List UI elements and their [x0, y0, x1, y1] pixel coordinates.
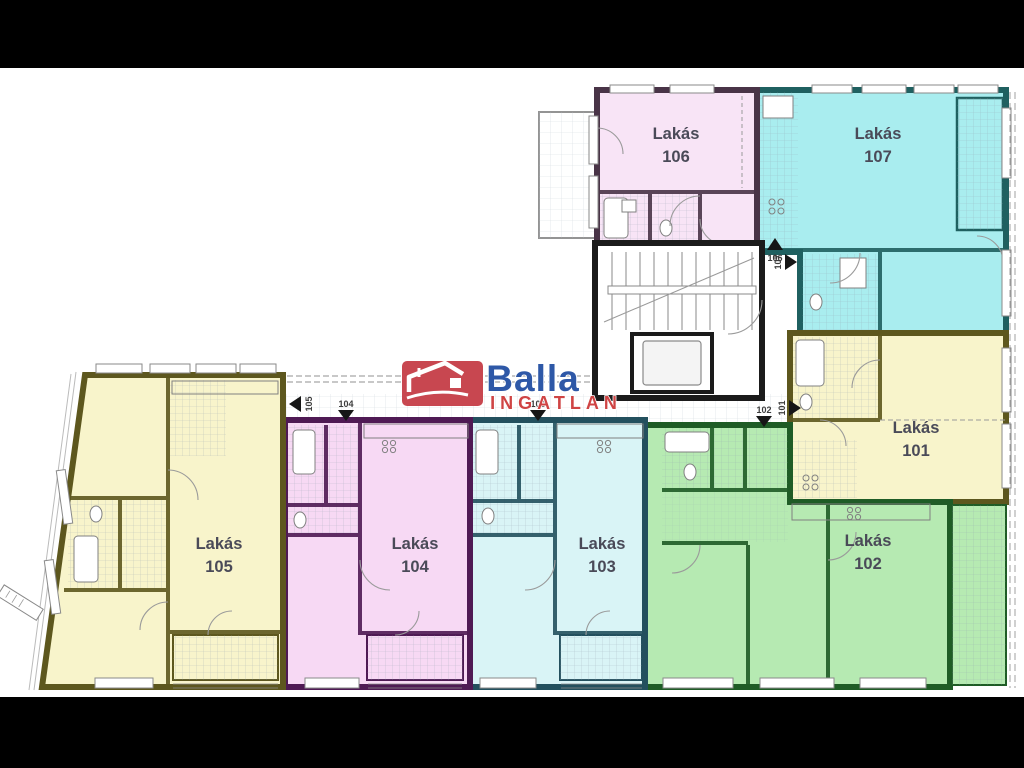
apartment-103: Lakás 103 [470, 420, 645, 687]
logo-subtitle-text: INGATLAN [490, 393, 622, 413]
logo-badge [402, 361, 483, 406]
house-icon-window [450, 378, 461, 388]
apartment-102-terrace-tiles [952, 505, 1006, 685]
floorplan-drawing: Lakás 107 Lakás 106 [0, 0, 1024, 768]
apartment-105: Lakás 105 [42, 375, 283, 687]
elevator-car [643, 341, 701, 385]
apartment-105-balcony-tiles [173, 635, 278, 680]
floorplan-page: Lakás 107 Lakás 106 [0, 0, 1024, 768]
stair-handrail [608, 286, 756, 294]
apartment-102-number: 102 [854, 555, 882, 573]
apartment-101: Lakás 101 [790, 333, 1006, 502]
apartment-104-number: 104 [401, 558, 429, 576]
apartment-105-number: 105 [205, 558, 233, 576]
apartment-104-balcony-tiles [367, 635, 463, 680]
stair-core [595, 243, 762, 398]
apartment-105-kitchen-tiles [170, 380, 226, 456]
entrance-104-number: 104 [338, 399, 353, 409]
apartment-107-number: 107 [864, 148, 892, 166]
entrance-105-number: 105 [304, 396, 314, 411]
apartment-102-name: Lakás [845, 532, 892, 550]
entrance-107-number: 107 [773, 254, 783, 269]
apartment-106: Lakás 106 [539, 90, 757, 245]
apartment-106-number: 106 [662, 148, 690, 166]
apartment-105-name: Lakás [196, 535, 243, 553]
apartment-104: Lakás 104 [285, 420, 470, 687]
apartment-101-number: 101 [902, 442, 930, 460]
apartment-107-balcony-tiles [957, 98, 1003, 230]
apartment-106-balcony-tiles [539, 112, 597, 238]
entrance-101-number: 101 [777, 400, 787, 415]
entrance-102-number: 102 [756, 405, 771, 415]
apartment-101-name: Lakás [893, 419, 940, 437]
apartment-103-number: 103 [588, 558, 616, 576]
apartment-104-name: Lakás [392, 535, 439, 553]
apartment-103-balcony-tiles [560, 635, 642, 680]
apartment-106-name: Lakás [653, 125, 700, 143]
apartment-101-kitchen-tiles [793, 440, 857, 498]
apartment-103-name: Lakás [579, 535, 626, 553]
apartment-102-hall-tiles [662, 492, 788, 542]
apartment-107-name: Lakás [855, 125, 902, 143]
